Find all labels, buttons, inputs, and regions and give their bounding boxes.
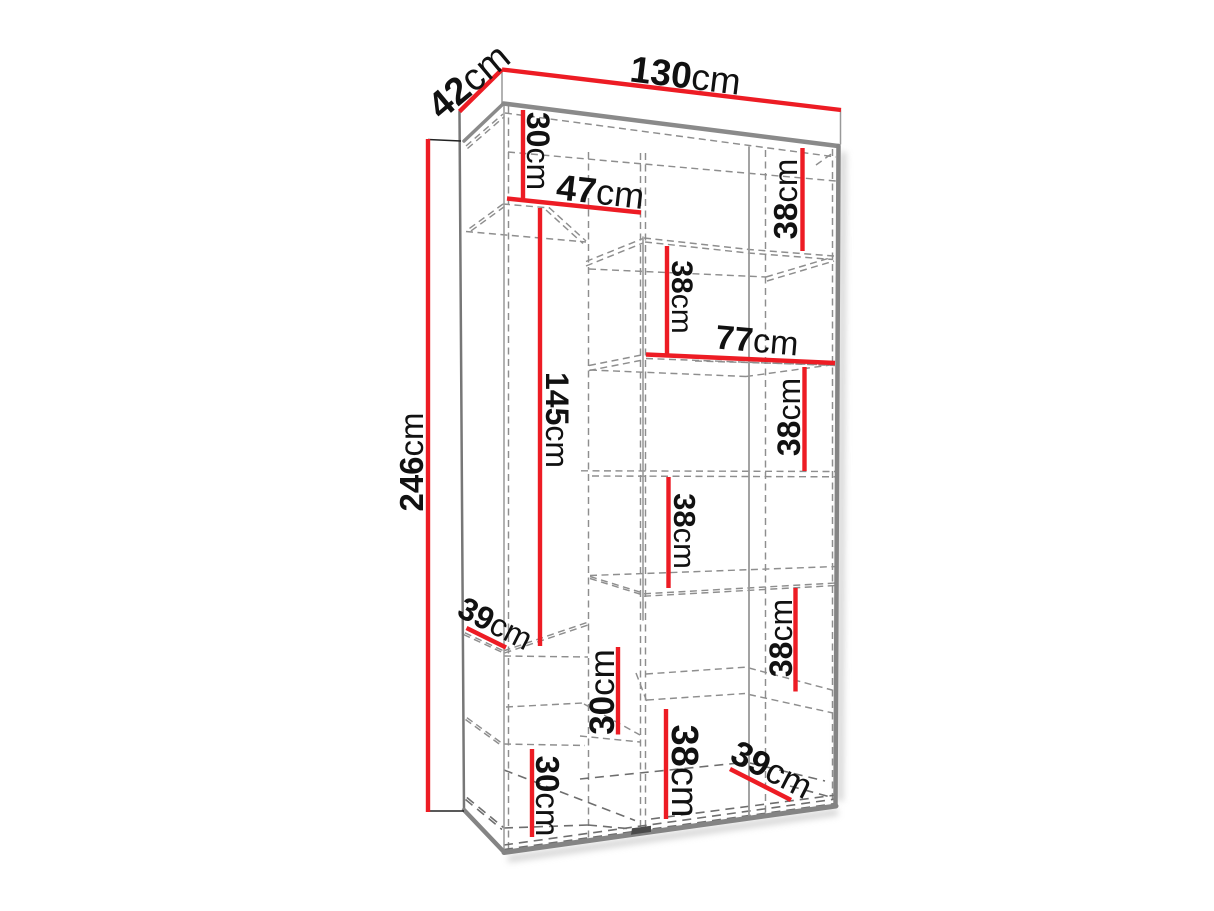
svg-text:30cm: 30cm xyxy=(583,649,622,735)
svg-text:145cm: 145cm xyxy=(539,372,575,468)
svg-text:30cm: 30cm xyxy=(520,112,556,190)
svg-text:38cm: 38cm xyxy=(763,599,799,677)
svg-text:38cm: 38cm xyxy=(663,725,705,818)
svg-text:38cm: 38cm xyxy=(667,493,702,569)
svg-text:77cm: 77cm xyxy=(714,318,800,363)
svg-text:38cm: 38cm xyxy=(665,260,698,333)
svg-text:38cm: 38cm xyxy=(771,378,807,456)
svg-text:30cm: 30cm xyxy=(529,756,566,837)
svg-text:38cm: 38cm xyxy=(767,159,804,240)
svg-text:246cm: 246cm xyxy=(393,412,430,511)
